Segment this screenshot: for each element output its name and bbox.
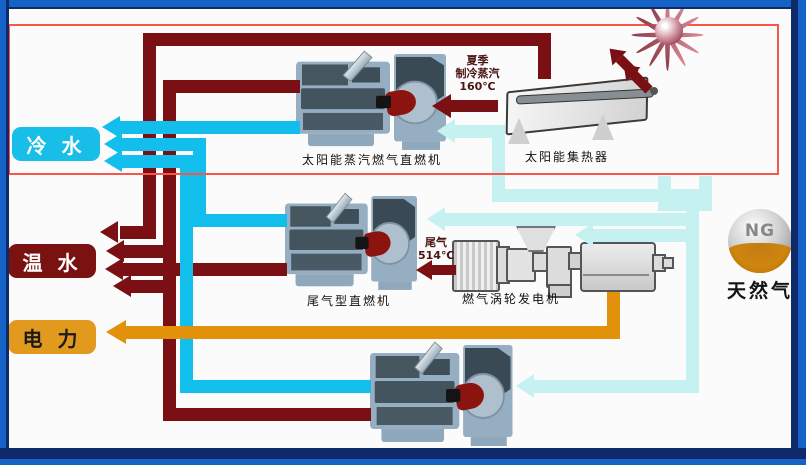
gas-arrow-to-turbine — [575, 223, 593, 247]
exhaust-chiller-hot-out — [123, 263, 287, 276]
solar-steam-annotation: 夏季 制冷蒸汽 160℃ — [450, 54, 505, 93]
power-arrow — [106, 320, 126, 344]
frame-left-inner — [6, 0, 9, 465]
turbine-intake — [452, 240, 500, 292]
sphere-orange-half — [728, 243, 792, 273]
exhaust-chiller-cold-out — [193, 214, 287, 227]
gas-arrow-to-exhaust-chiller — [427, 207, 445, 231]
exhaust-pipe — [432, 265, 456, 275]
hot-pipe-segment — [124, 245, 176, 258]
generator-box — [580, 242, 656, 292]
hot-pipe-segment — [131, 280, 176, 293]
frame-bottom — [0, 459, 806, 465]
frame-top — [0, 0, 806, 7]
frame-right — [798, 0, 806, 465]
ng-badge: NG — [728, 221, 792, 241]
generator-shaft-tip — [662, 257, 674, 269]
solar-collector-label: 太阳能集热器 — [525, 148, 609, 165]
gas-chiller-cold-out — [180, 380, 371, 393]
gas-chiller-illustration — [370, 345, 513, 446]
frame-top-inner — [0, 7, 806, 9]
frame-right-inner — [791, 0, 798, 465]
electric-power-badge: 电 力 — [8, 320, 96, 354]
solar-chiller-label: 太阳能蒸汽燃气直燃机 — [302, 151, 442, 168]
hot-pipe-segment — [120, 226, 156, 239]
hot-arrow-4 — [113, 275, 131, 297]
warm-water-badge: 温 水 — [8, 244, 96, 278]
cold-water-badge: 冷 水 — [12, 127, 100, 161]
exhaust-chiller-label: 尾气型直燃机 — [307, 292, 391, 309]
exhaust-chiller-illustration — [285, 196, 417, 290]
sun-icon — [628, 0, 708, 75]
power-line — [126, 326, 620, 339]
exhaust-annotation: 尾气 514℃ — [418, 236, 454, 262]
gas-pipe-segment — [492, 189, 712, 202]
annotation-line: 尾气 — [418, 236, 454, 249]
sun-sphere — [655, 17, 683, 45]
annotation-line: 160℃ — [450, 80, 505, 93]
gas-pipe-segment — [445, 213, 699, 226]
annotation-line: 514℃ — [418, 249, 454, 262]
diagram-canvas: NG — [0, 0, 806, 465]
cold-riser-long — [180, 155, 193, 393]
gas-chiller-hot-out — [163, 408, 371, 421]
gas-turbine-label: 燃气涡轮发电机 — [462, 290, 560, 307]
annotation-line: 制冷蒸汽 — [450, 67, 505, 80]
exhaust-arrow — [416, 260, 432, 280]
annotation-line: 夏季 — [450, 54, 505, 67]
natural-gas-label: 天然气 — [727, 276, 793, 303]
gas-main-riser — [686, 198, 699, 393]
generator-seam — [583, 274, 649, 276]
natural-gas-sphere: NG — [728, 209, 792, 273]
gas-pipe-segment — [534, 380, 699, 393]
gas-pipe-segment — [593, 229, 692, 242]
gas-arrow-to-gas-chiller — [516, 374, 534, 398]
